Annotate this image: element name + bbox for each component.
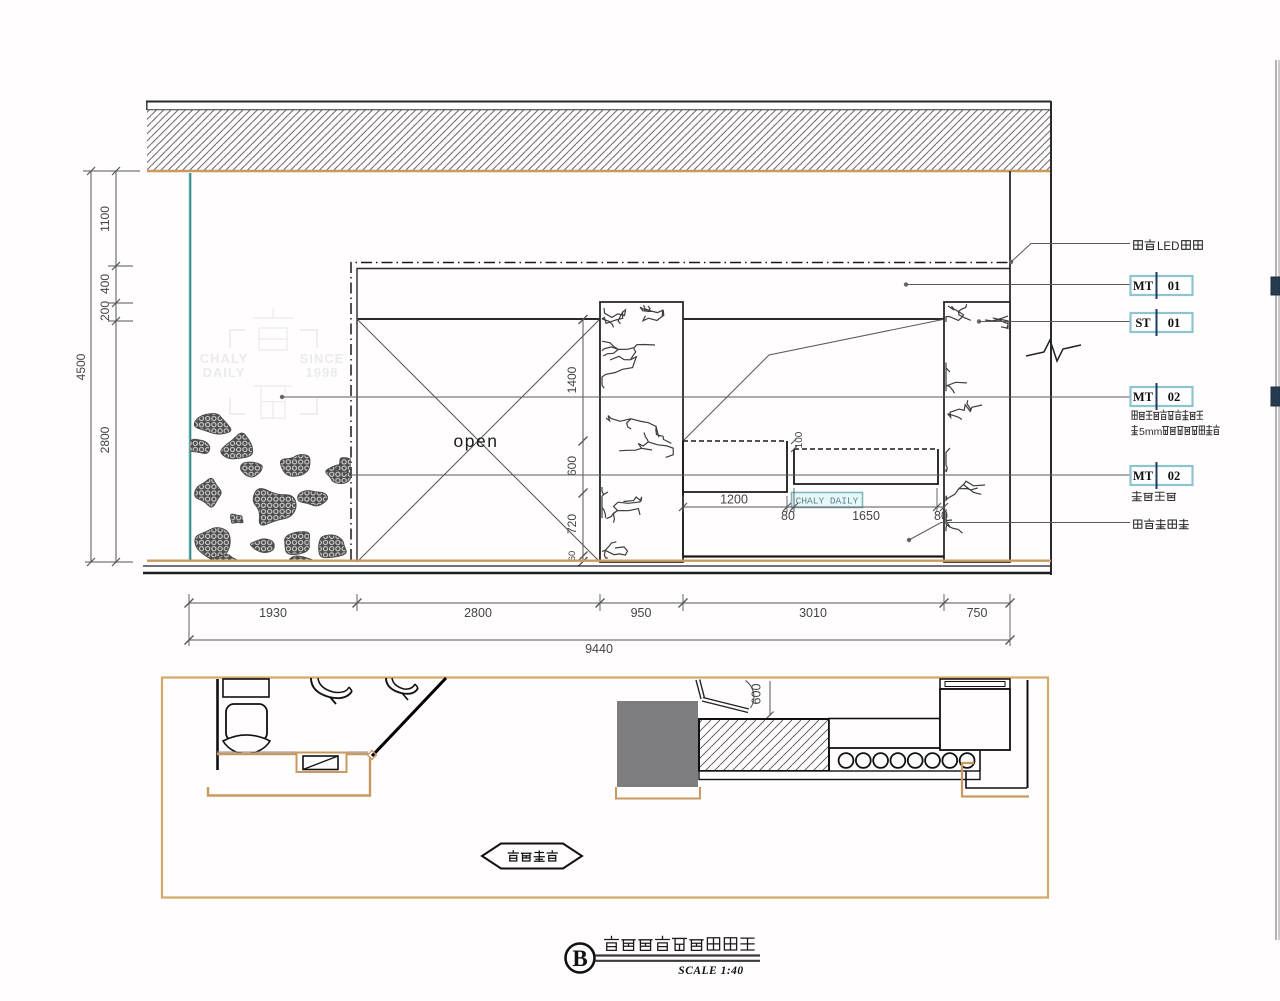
svg-text:80: 80 [781,509,795,523]
svg-text:01: 01 [1168,316,1181,330]
svg-text:SINCE: SINCE [300,351,345,366]
svg-text:MT: MT [1133,390,1154,404]
svg-text:SCALE 1:40: SCALE 1:40 [678,965,743,977]
svg-text:02: 02 [1168,469,1181,483]
svg-text:ST: ST [1135,316,1151,330]
svg-text:1650: 1650 [852,509,880,523]
svg-text:1930: 1930 [259,606,287,620]
svg-text:CHALY: CHALY [200,351,249,366]
svg-text:80: 80 [934,509,948,523]
svg-text:LED: LED [1157,241,1179,253]
svg-text:DAILY: DAILY [203,365,246,380]
svg-text:1200: 1200 [720,493,748,507]
svg-text:4500: 4500 [74,353,88,380]
svg-text:MT: MT [1133,469,1154,483]
svg-text:750: 750 [967,606,988,620]
svg-text:MT: MT [1133,279,1154,293]
svg-text:720: 720 [565,514,579,534]
svg-text:600: 600 [565,456,579,476]
svg-text:01: 01 [1168,279,1181,293]
svg-text:1400: 1400 [565,366,579,393]
svg-text:200: 200 [98,301,112,321]
svg-text:2800: 2800 [464,606,492,620]
svg-text:02: 02 [1168,390,1181,404]
svg-text:600: 600 [750,684,764,705]
svg-text:950: 950 [631,606,652,620]
svg-text:1998: 1998 [306,365,339,380]
svg-text:2800: 2800 [98,426,112,453]
svg-text:CHALY DAILY: CHALY DAILY [796,496,859,507]
svg-text:400: 400 [98,274,112,294]
svg-text:3010: 3010 [799,606,827,620]
svg-text:B: B [572,946,587,971]
svg-text:open: open [454,431,499,451]
svg-text:1100: 1100 [98,206,112,232]
svg-text:9440: 9440 [585,642,613,656]
svg-text:5mm: 5mm [1139,426,1163,438]
